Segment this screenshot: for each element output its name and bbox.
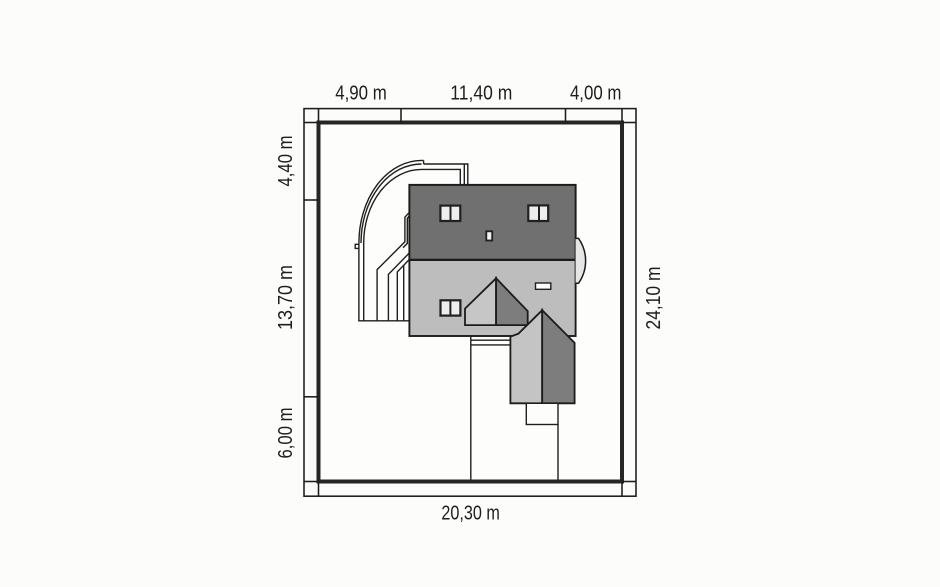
svg-text:11,40 m: 11,40 m xyxy=(450,82,512,105)
svg-text:4,00 m: 4,00 m xyxy=(570,82,622,105)
svg-text:13,70 m: 13,70 m xyxy=(274,265,297,330)
svg-text:4,40 m: 4,40 m xyxy=(274,136,297,187)
svg-text:6,00 m: 6,00 m xyxy=(274,408,297,459)
svg-text:4,90 m: 4,90 m xyxy=(335,82,387,105)
svg-text:20,30 m: 20,30 m xyxy=(441,502,500,525)
svg-text:24,10 m: 24,10 m xyxy=(642,267,665,330)
